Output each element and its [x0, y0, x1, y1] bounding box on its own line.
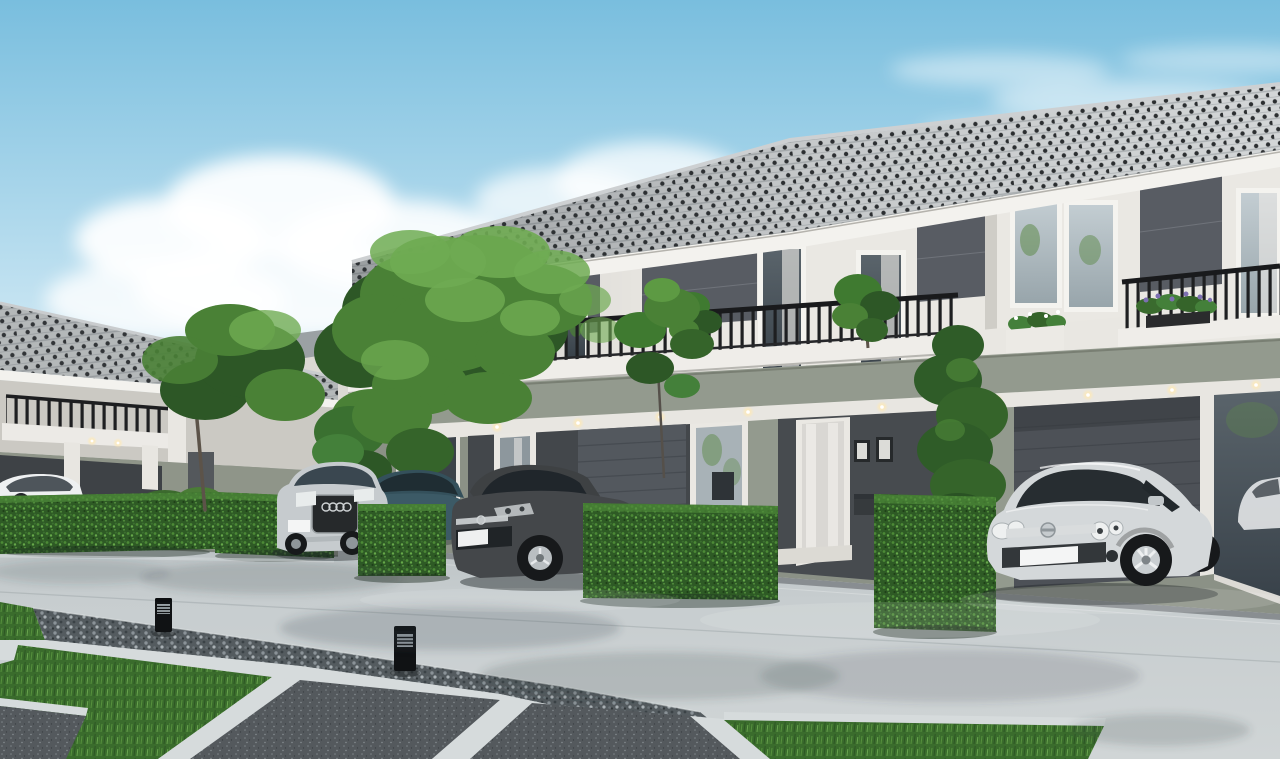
- render-image: [0, 0, 1280, 759]
- lawn-strip-right: [724, 720, 1104, 759]
- glass-door-unit4: [796, 417, 850, 566]
- opel-emblem-icon: [1041, 523, 1055, 537]
- white-flower-planter: [1006, 310, 1066, 357]
- ground-glass-window: [1214, 391, 1280, 604]
- hedge-row-left: [0, 492, 215, 558]
